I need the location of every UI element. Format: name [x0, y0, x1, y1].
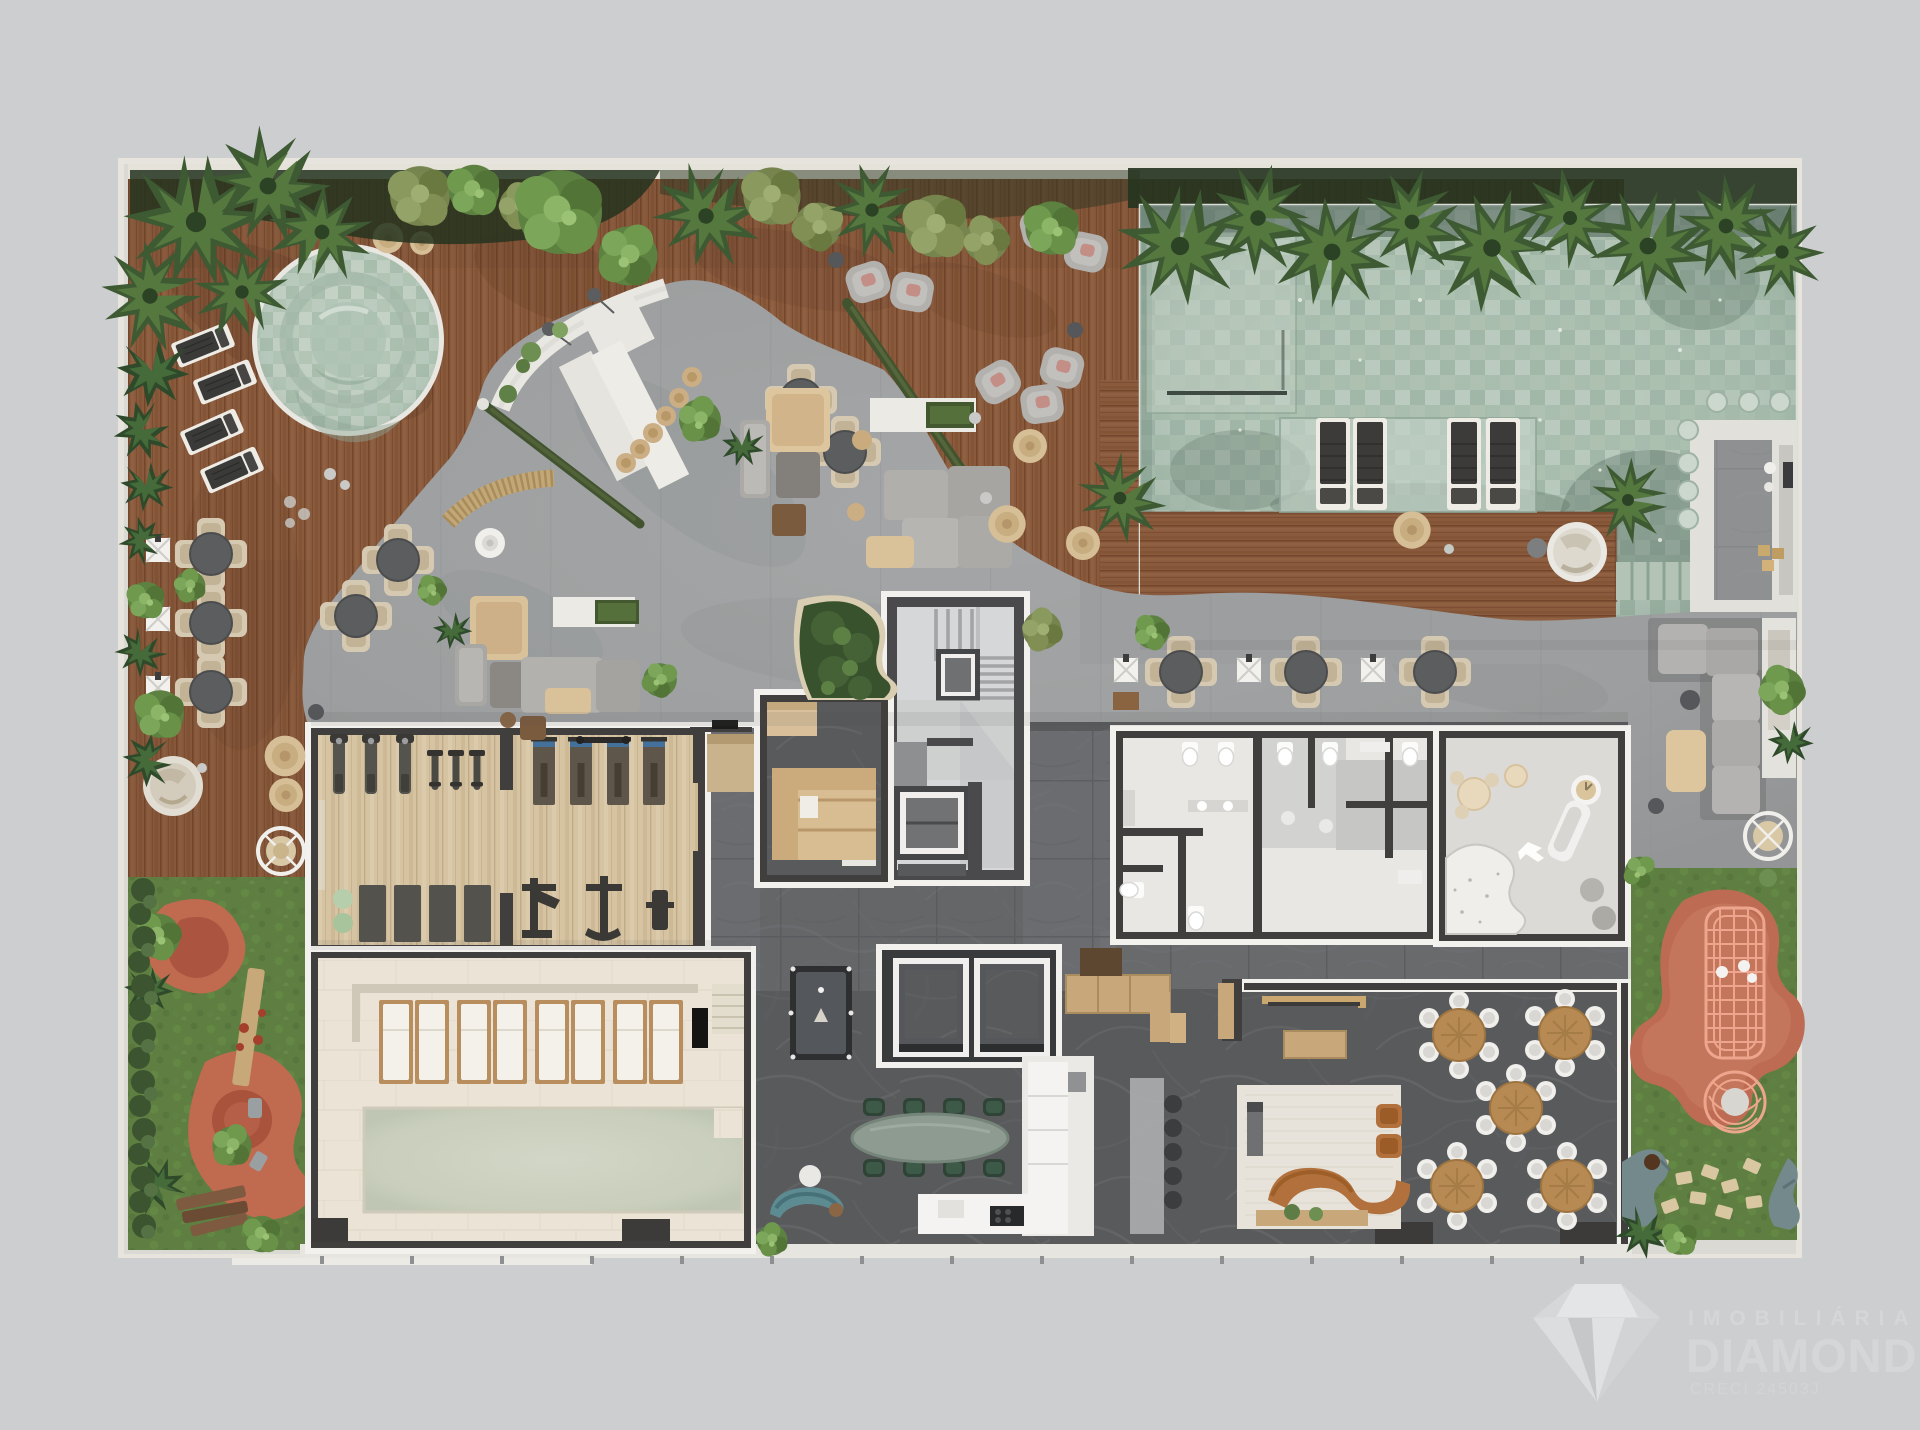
- svg-text:CRECI 24503J: CRECI 24503J: [1690, 1381, 1821, 1398]
- svg-text:IMOBILIÁRIA: IMOBILIÁRIA: [1688, 1307, 1918, 1330]
- svg-text:DIAMOND: DIAMOND: [1686, 1329, 1918, 1382]
